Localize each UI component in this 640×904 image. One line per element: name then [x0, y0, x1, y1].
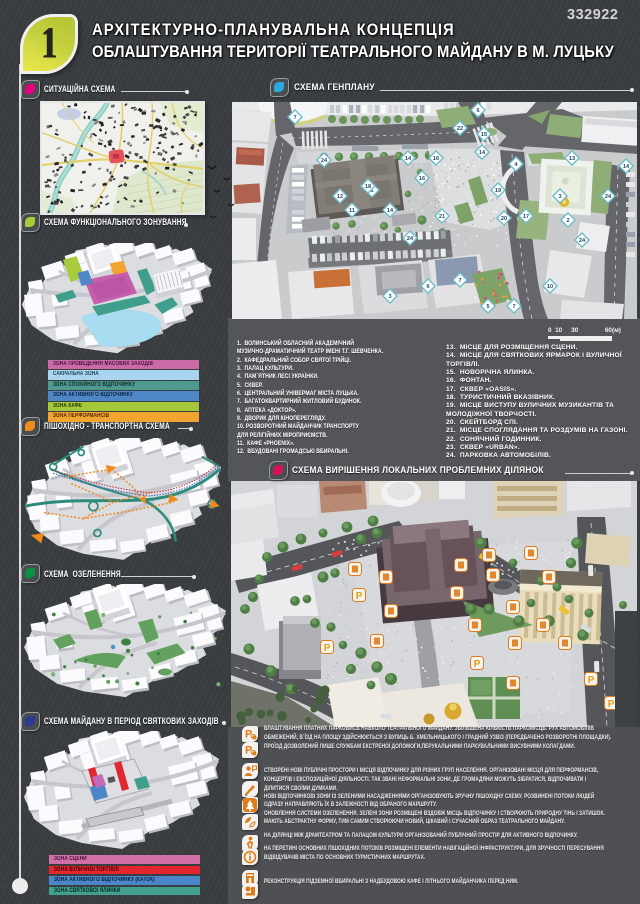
svg-text:11: 11	[349, 208, 355, 214]
svg-text:P: P	[324, 643, 331, 654]
svg-text:17: 17	[523, 214, 529, 220]
svg-text:22: 22	[457, 126, 463, 132]
svg-text:24: 24	[407, 236, 414, 242]
svg-text:3: 3	[388, 294, 391, 300]
svg-text:14: 14	[387, 208, 394, 214]
svg-text:18: 18	[365, 184, 371, 190]
svg-text:P: P	[588, 675, 595, 686]
svg-text:24: 24	[605, 194, 612, 200]
svg-text:7: 7	[458, 278, 461, 284]
svg-text:7: 7	[293, 115, 296, 121]
svg-text:P: P	[245, 745, 252, 757]
svg-text:6: 6	[426, 284, 429, 290]
svg-text:20: 20	[501, 216, 507, 222]
svg-text:12: 12	[337, 194, 343, 200]
svg-text:19: 19	[495, 188, 501, 194]
svg-text:15: 15	[481, 132, 487, 138]
svg-text:16: 16	[419, 176, 425, 182]
svg-text:3: 3	[558, 194, 561, 200]
svg-text:P: P	[245, 729, 252, 741]
svg-text:13: 13	[569, 156, 575, 162]
svg-text:21: 21	[439, 214, 445, 220]
svg-text:5: 5	[486, 304, 489, 310]
svg-text:2: 2	[566, 218, 569, 224]
svg-text:P: P	[608, 699, 615, 710]
svg-text:14: 14	[623, 164, 630, 170]
svg-text:24: 24	[321, 158, 328, 164]
svg-text:16: 16	[433, 156, 439, 162]
svg-text:24: 24	[579, 238, 586, 244]
svg-text:14: 14	[405, 156, 412, 162]
svg-text:6: 6	[476, 108, 479, 114]
svg-text:14: 14	[479, 150, 486, 156]
svg-text:P: P	[356, 591, 363, 602]
svg-text:P: P	[474, 659, 481, 670]
svg-text:7: 7	[512, 304, 515, 310]
svg-text:10: 10	[547, 284, 553, 290]
